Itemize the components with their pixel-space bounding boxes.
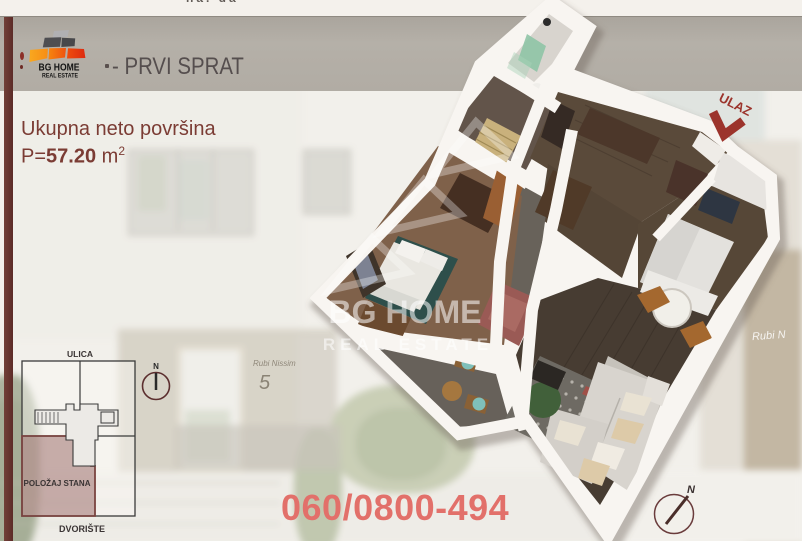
svg-text:DVORIŠTE: DVORIŠTE	[59, 523, 105, 534]
svg-text:N: N	[153, 362, 159, 371]
svg-text:N: N	[687, 484, 696, 496]
svg-text:REAL ESTATE: REAL ESTATE	[323, 335, 493, 354]
svg-text:BG HOME: BG HOME	[329, 294, 482, 330]
svg-text:POLOŽAJ STANA: POLOŽAJ STANA	[24, 479, 91, 488]
svg-text:ULICA: ULICA	[67, 349, 93, 359]
